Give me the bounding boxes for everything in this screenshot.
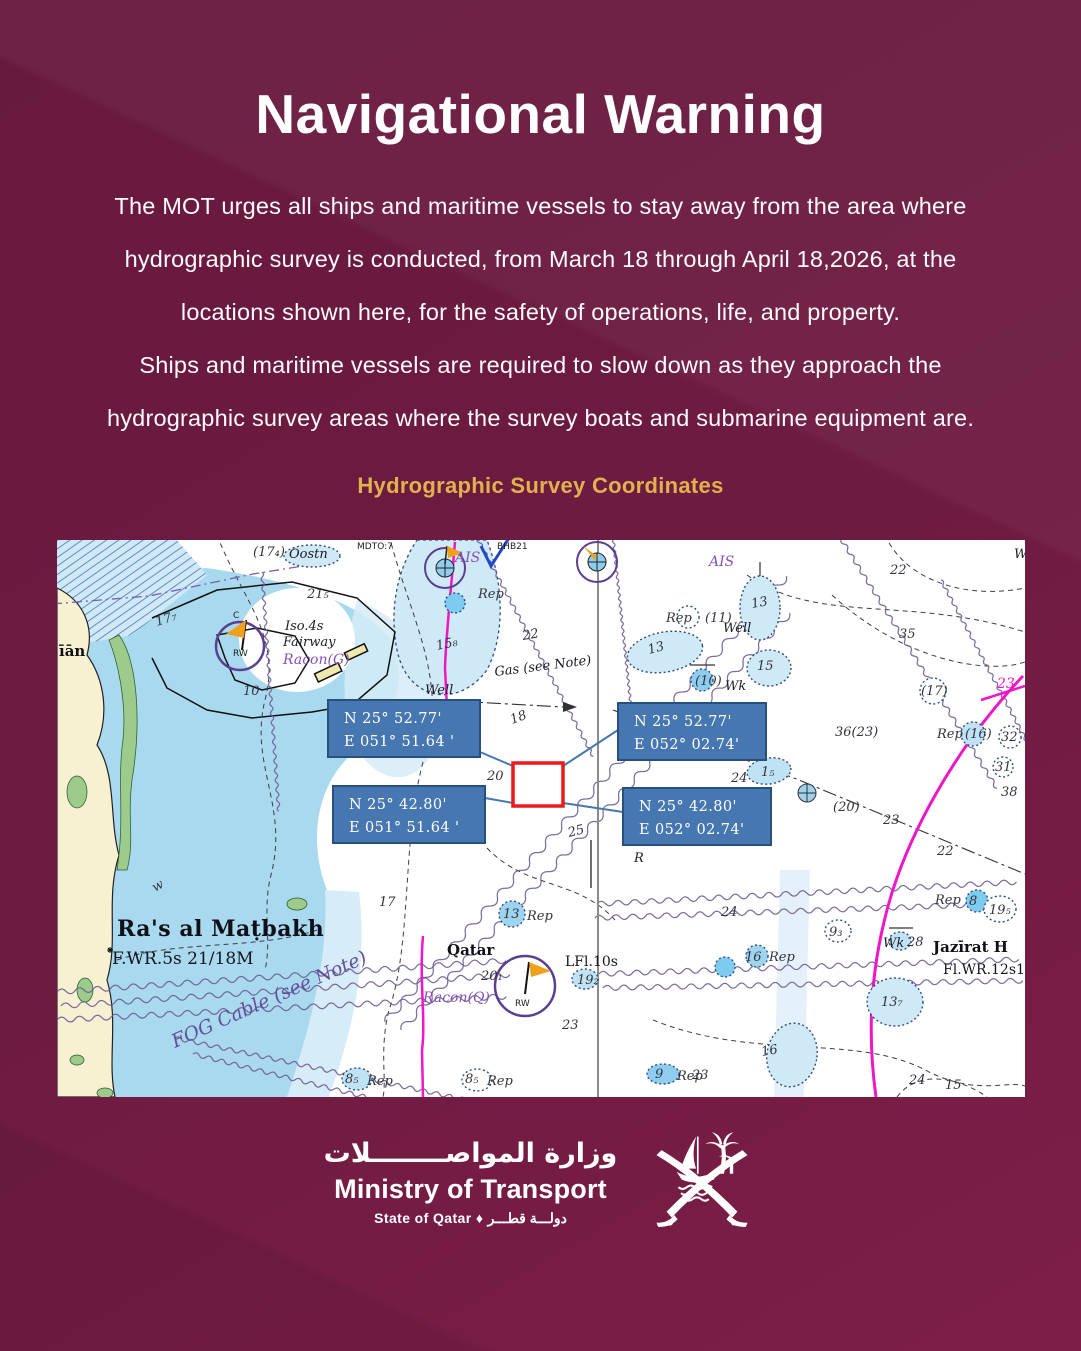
warning-text-line: The MOT urges all ships and maritime ves… bbox=[0, 180, 1081, 233]
coordinate-text: E 051° 51.64 ' bbox=[344, 734, 454, 750]
chart-label: Rep bbox=[676, 1069, 703, 1084]
chart-label: W bbox=[1014, 547, 1025, 562]
chart-label: 22 bbox=[889, 563, 907, 578]
chart-label: Rep bbox=[936, 727, 963, 742]
ministry-name-english: Ministry of Transport bbox=[321, 1171, 621, 1207]
racon-buoy bbox=[495, 956, 555, 1016]
chart-label: Gas (see Note) bbox=[494, 653, 593, 680]
chart-label: Qatar bbox=[447, 941, 495, 959]
chart-label: (17₄) bbox=[253, 545, 285, 560]
coordinate-box-northeast: N 25° 52.77' E 052° 02.74' bbox=[618, 703, 766, 760]
coordinate-text: N 25° 42.80' bbox=[639, 799, 737, 815]
warning-text-line: hydrographic survey areas where the surv… bbox=[0, 392, 1081, 445]
chart-label: 36(23) bbox=[835, 725, 878, 740]
chart-label: AIS bbox=[707, 554, 734, 570]
section-heading: Hydrographic Survey Coordinates bbox=[0, 473, 1081, 499]
coordinate-text: N 25° 52.77' bbox=[344, 711, 442, 727]
chart-label: (20) bbox=[833, 800, 860, 815]
chart-label: (11) bbox=[705, 611, 732, 626]
coordinate-text: E 051° 51.64 ' bbox=[349, 820, 459, 836]
coordinate-box-southwest: N 25° 42.80' E 051° 51.64 ' bbox=[333, 786, 485, 843]
chart-label: Fl.WR.12s19 bbox=[943, 962, 1025, 978]
warning-text-line: hydrographic survey is conducted, from M… bbox=[0, 233, 1081, 286]
coordinate-text: E 052° 02.74' bbox=[634, 737, 739, 753]
warning-text-line: locations shown here, for the safety of … bbox=[0, 286, 1081, 339]
warning-text: The MOT urges all ships and maritime ves… bbox=[0, 180, 1081, 445]
chart-label: 17 bbox=[379, 895, 396, 910]
coordinate-box-southeast: N 25° 42.80' E 052° 02.74' bbox=[623, 788, 771, 845]
chart-label: RW bbox=[515, 999, 530, 1009]
chart-label: 20 bbox=[486, 769, 504, 784]
ministry-of-transport-logo: وزارة المواصــــــــلات Ministry of Tran… bbox=[0, 1122, 1081, 1244]
chart-label: LFl.10s bbox=[565, 954, 618, 970]
chart-label: 35 bbox=[899, 627, 916, 642]
chart-label: MDTO:7 bbox=[357, 542, 393, 552]
chart-label: 38 bbox=[1001, 785, 1018, 800]
poster-title: Navigational Warning bbox=[0, 0, 1081, 146]
chart-label: 23 bbox=[561, 1018, 579, 1033]
coordinate-text: E 052° 02.74' bbox=[639, 822, 744, 838]
chart-label: Rep bbox=[526, 909, 553, 924]
chart-label: 23 bbox=[691, 1068, 709, 1083]
warning-text-line: Ships and maritime vessels are required … bbox=[0, 339, 1081, 392]
state-of-qatar-line: State of Qatar ♦ دولـــة قطـــر bbox=[321, 1207, 621, 1229]
chart-label: 24 bbox=[730, 771, 748, 786]
chart-label: 22 bbox=[936, 844, 954, 859]
coordinate-text: N 25° 42.80' bbox=[349, 797, 447, 813]
navigational-warning-poster: Navigational Warning The MOT urges all s… bbox=[0, 0, 1081, 1351]
survey-area-marker bbox=[513, 763, 563, 806]
chart-label: 24 bbox=[720, 905, 738, 920]
chart-label: 18 bbox=[508, 708, 529, 728]
coordinate-text: N 25° 52.77' bbox=[634, 714, 732, 730]
nautical-chart: 17₇(17₄)Oostn21₅Iso.4sFairwayRacon(G)īān… bbox=[57, 540, 1025, 1097]
logo-text: وزارة المواصــــــــلات Ministry of Tran… bbox=[321, 1137, 621, 1229]
marker-buoy bbox=[798, 784, 816, 802]
qatar-emblem bbox=[643, 1122, 761, 1244]
chart-label: Jazīrat H bbox=[931, 938, 1008, 956]
survey-connectors bbox=[480, 730, 623, 812]
coordinate-box-northwest: N 25° 52.77' E 051° 51.64 ' bbox=[328, 700, 480, 757]
chart-label: R bbox=[633, 851, 644, 866]
ministry-name-arabic: وزارة المواصــــــــلات bbox=[321, 1137, 621, 1171]
